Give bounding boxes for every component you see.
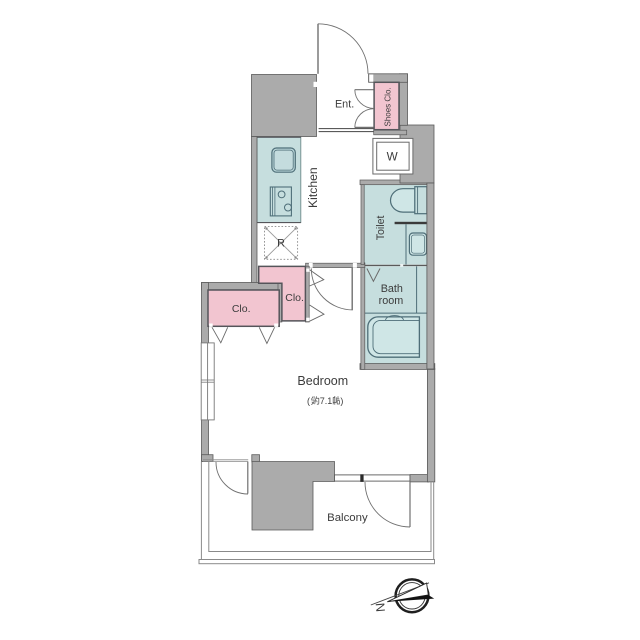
svg-text:Balcony: Balcony xyxy=(327,512,368,524)
svg-text:Bedroom: Bedroom xyxy=(297,374,348,388)
svg-text:7.1: 7.1 xyxy=(320,396,333,406)
svg-text:room: room xyxy=(379,295,404,307)
svg-text:Toilet: Toilet xyxy=(375,216,387,241)
svg-text:N: N xyxy=(373,602,388,612)
svg-text:Clo.: Clo. xyxy=(232,303,251,315)
svg-text:): ) xyxy=(340,396,343,406)
svg-text:R: R xyxy=(277,237,285,249)
svg-text:Clo.: Clo. xyxy=(285,292,304,304)
svg-text:(: ( xyxy=(307,396,310,406)
svg-text:Kitchen: Kitchen xyxy=(306,167,320,208)
svg-text:W: W xyxy=(387,151,398,164)
svg-text:Ent.: Ent. xyxy=(335,99,354,111)
svg-text:Shoes Clo.: Shoes Clo. xyxy=(383,87,392,126)
svg-text:Bath: Bath xyxy=(381,283,403,295)
